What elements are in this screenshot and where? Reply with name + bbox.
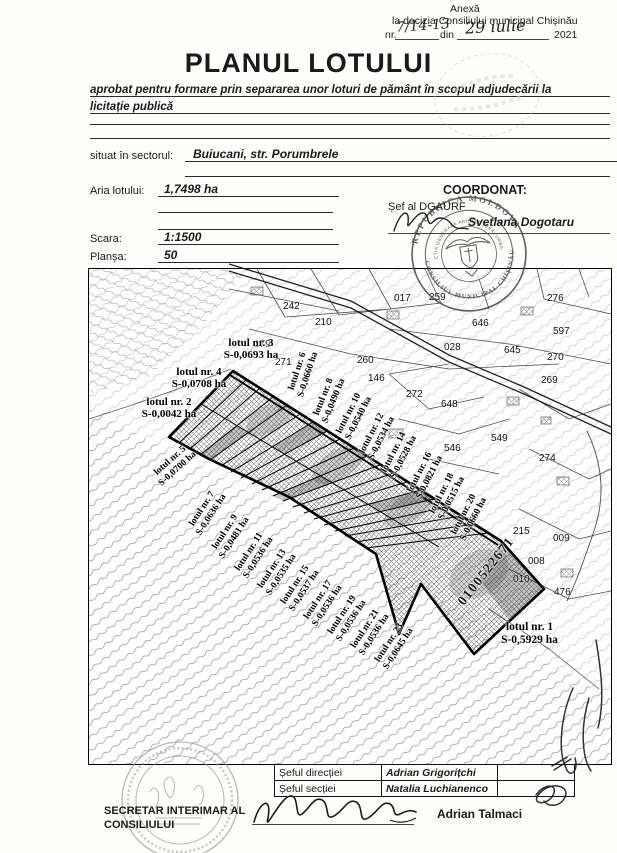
- secretary-name: Adrian Talmaci: [437, 807, 522, 821]
- sector-blank-rule: [185, 164, 610, 177]
- area-blank-rule-2: [158, 217, 333, 230]
- parcel-number: 546: [444, 443, 461, 454]
- parcel-number: 017: [394, 293, 411, 304]
- blank-rule-2: [90, 126, 610, 139]
- plansa-label: Planșa:: [90, 251, 127, 263]
- parcel-number: 010: [513, 574, 530, 585]
- subtitle-line1: aprobat pentru formare prin separarea un…: [90, 84, 610, 97]
- role-cell: Șeful direcției: [275, 765, 382, 781]
- parcel-number: 260: [357, 355, 374, 366]
- year-label: 2021: [554, 29, 577, 41]
- nr-underline: [395, 26, 439, 40]
- lot-name: lotul nr. 4: [176, 366, 221, 378]
- lot-area: S-0,0042 ha: [142, 408, 196, 420]
- secretary-label: SECRETAR INTERIMAR AL CONSILIULUI: [104, 804, 245, 833]
- map-drawing: [89, 269, 611, 764]
- signature-cell: [498, 781, 575, 797]
- secretary-line1: SECRETAR INTERIMAR AL: [104, 804, 245, 818]
- map-lot-label-3: lotul nr. 3 S-0,0693 ha: [201, 337, 301, 362]
- parcel-number: 645: [504, 345, 521, 356]
- parcel-number: 646: [472, 318, 489, 329]
- table-row: Șeful secției Natalia Luchianenco: [275, 781, 575, 797]
- sector-value: Buiucani, str. Porumbrele: [185, 147, 617, 162]
- map-lot-label-1: lotul nr. 1 S-0,5929 ha: [482, 621, 577, 647]
- table-row: Șeful direcției Adrian Grigorițchi: [275, 765, 575, 781]
- parcel-number: 259: [429, 292, 446, 303]
- parcel-number: 210: [315, 317, 332, 328]
- parcel-number: 215: [513, 526, 530, 537]
- area-blank-rule-1: [158, 200, 333, 213]
- parcel-number: 274: [539, 453, 556, 464]
- map-lot-label-2: lotul nr. 2 S-0,0042 ha: [114, 396, 224, 421]
- sef-dgaurf-label: Șef al DGAURF: [388, 201, 466, 213]
- area-value: 1,7498 ha: [158, 182, 339, 197]
- document-page: Anexă la decizia Consiliului municipal C…: [0, 0, 617, 853]
- parcel-number: 242: [283, 301, 300, 312]
- parcel-number: 272: [406, 389, 423, 400]
- blank-rule-1: [90, 112, 610, 125]
- parcel-number: 597: [553, 326, 570, 337]
- parcel-number: 028: [444, 342, 461, 353]
- plansa-value: 50: [158, 248, 339, 263]
- approval-table: Șeful direcției Adrian Grigorițchi Șeful…: [274, 764, 575, 797]
- name-cell: Adrian Grigorițchi: [381, 765, 497, 781]
- parcel-number: 270: [547, 352, 564, 363]
- parcel-number: 549: [491, 433, 508, 444]
- parcel-number: 269: [541, 375, 558, 386]
- parcel-number: 146: [368, 373, 385, 384]
- lot-area: S-0,5929 ha: [501, 634, 558, 646]
- signature-cell: [498, 765, 575, 781]
- parcel-number: 009: [553, 533, 570, 544]
- parcel-number: 276: [547, 293, 564, 304]
- coordonat-sign-line: [388, 222, 610, 234]
- annex-label: Anexă: [450, 3, 480, 15]
- lot-name: lotul nr. 2: [146, 396, 191, 408]
- date-underline: [457, 26, 549, 40]
- cadastral-map: 0100522671 lotul nr. 3 S-0,0693 ha lotul…: [88, 268, 612, 765]
- secretary-line2: CONSILIULUI: [104, 818, 245, 832]
- map-lot-label-4: lotul nr. 4 S-0,0708 ha: [144, 366, 254, 391]
- secretary-sign-line: [252, 812, 414, 825]
- coordonat-label: COORDONAT:: [443, 183, 527, 197]
- lot-name: lotul nr. 1: [506, 621, 553, 633]
- lot-name: lotul nr. 3: [228, 337, 273, 349]
- page-title: PLANUL LOTULUI: [0, 48, 617, 79]
- scara-label: Scara:: [90, 233, 122, 245]
- parcel-number: 008: [528, 556, 545, 567]
- map-lot-label-5: lotul nr. 5S-0,0700 ha: [149, 441, 198, 488]
- scara-value: 1:1500: [158, 230, 339, 245]
- sector-label: situat în sectorul:: [90, 150, 173, 162]
- area-label: Aria lotului:: [90, 185, 144, 197]
- parcel-number: 648: [441, 399, 458, 410]
- din-label: din: [440, 29, 454, 41]
- cadastral-number: 0100522671: [454, 534, 517, 609]
- parcel-number: 476: [554, 587, 571, 598]
- lot-area: S-0,0693 ha: [224, 349, 278, 361]
- name-cell: Natalia Luchianenco: [381, 781, 497, 797]
- role-cell: Șeful secției: [275, 781, 382, 797]
- lot-area: S-0,0708 ha: [172, 378, 226, 390]
